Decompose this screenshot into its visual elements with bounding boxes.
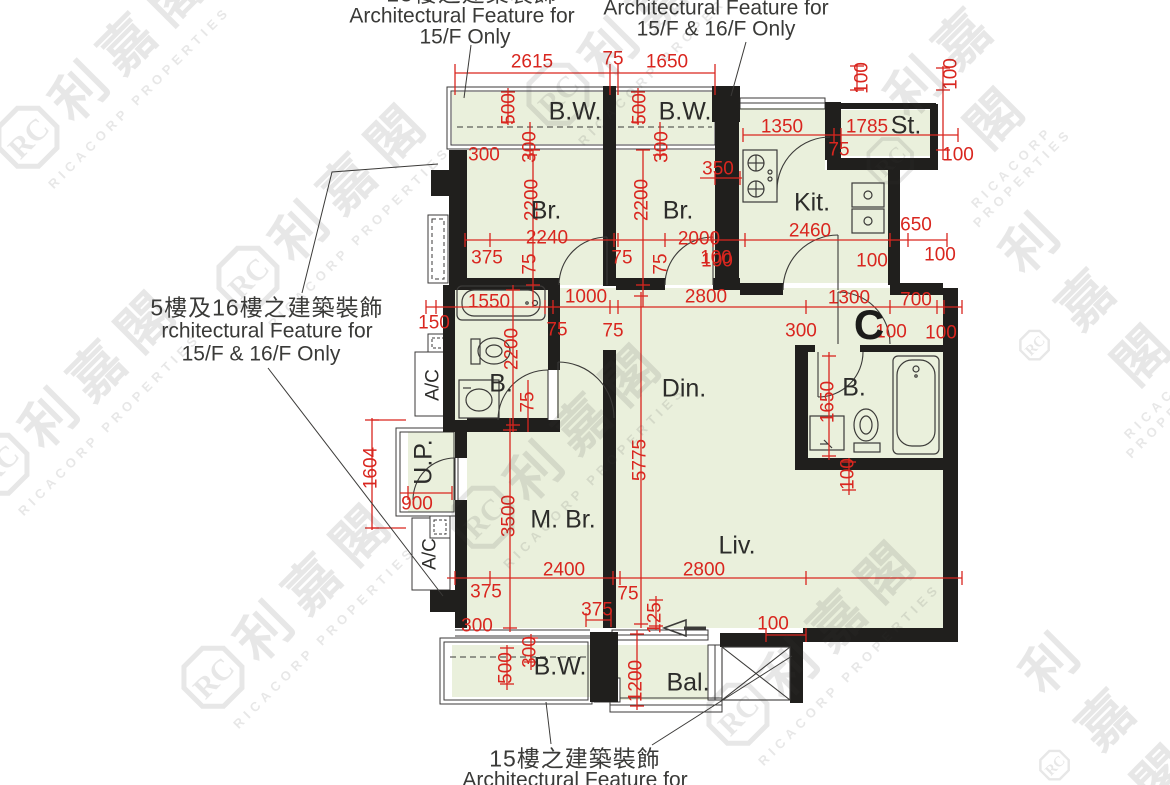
hatch-area [722, 647, 790, 700]
floorplan-page: 2615751650500300300220022403757550030022… [0, 0, 1170, 785]
floor-plan-drawing [0, 0, 1170, 785]
